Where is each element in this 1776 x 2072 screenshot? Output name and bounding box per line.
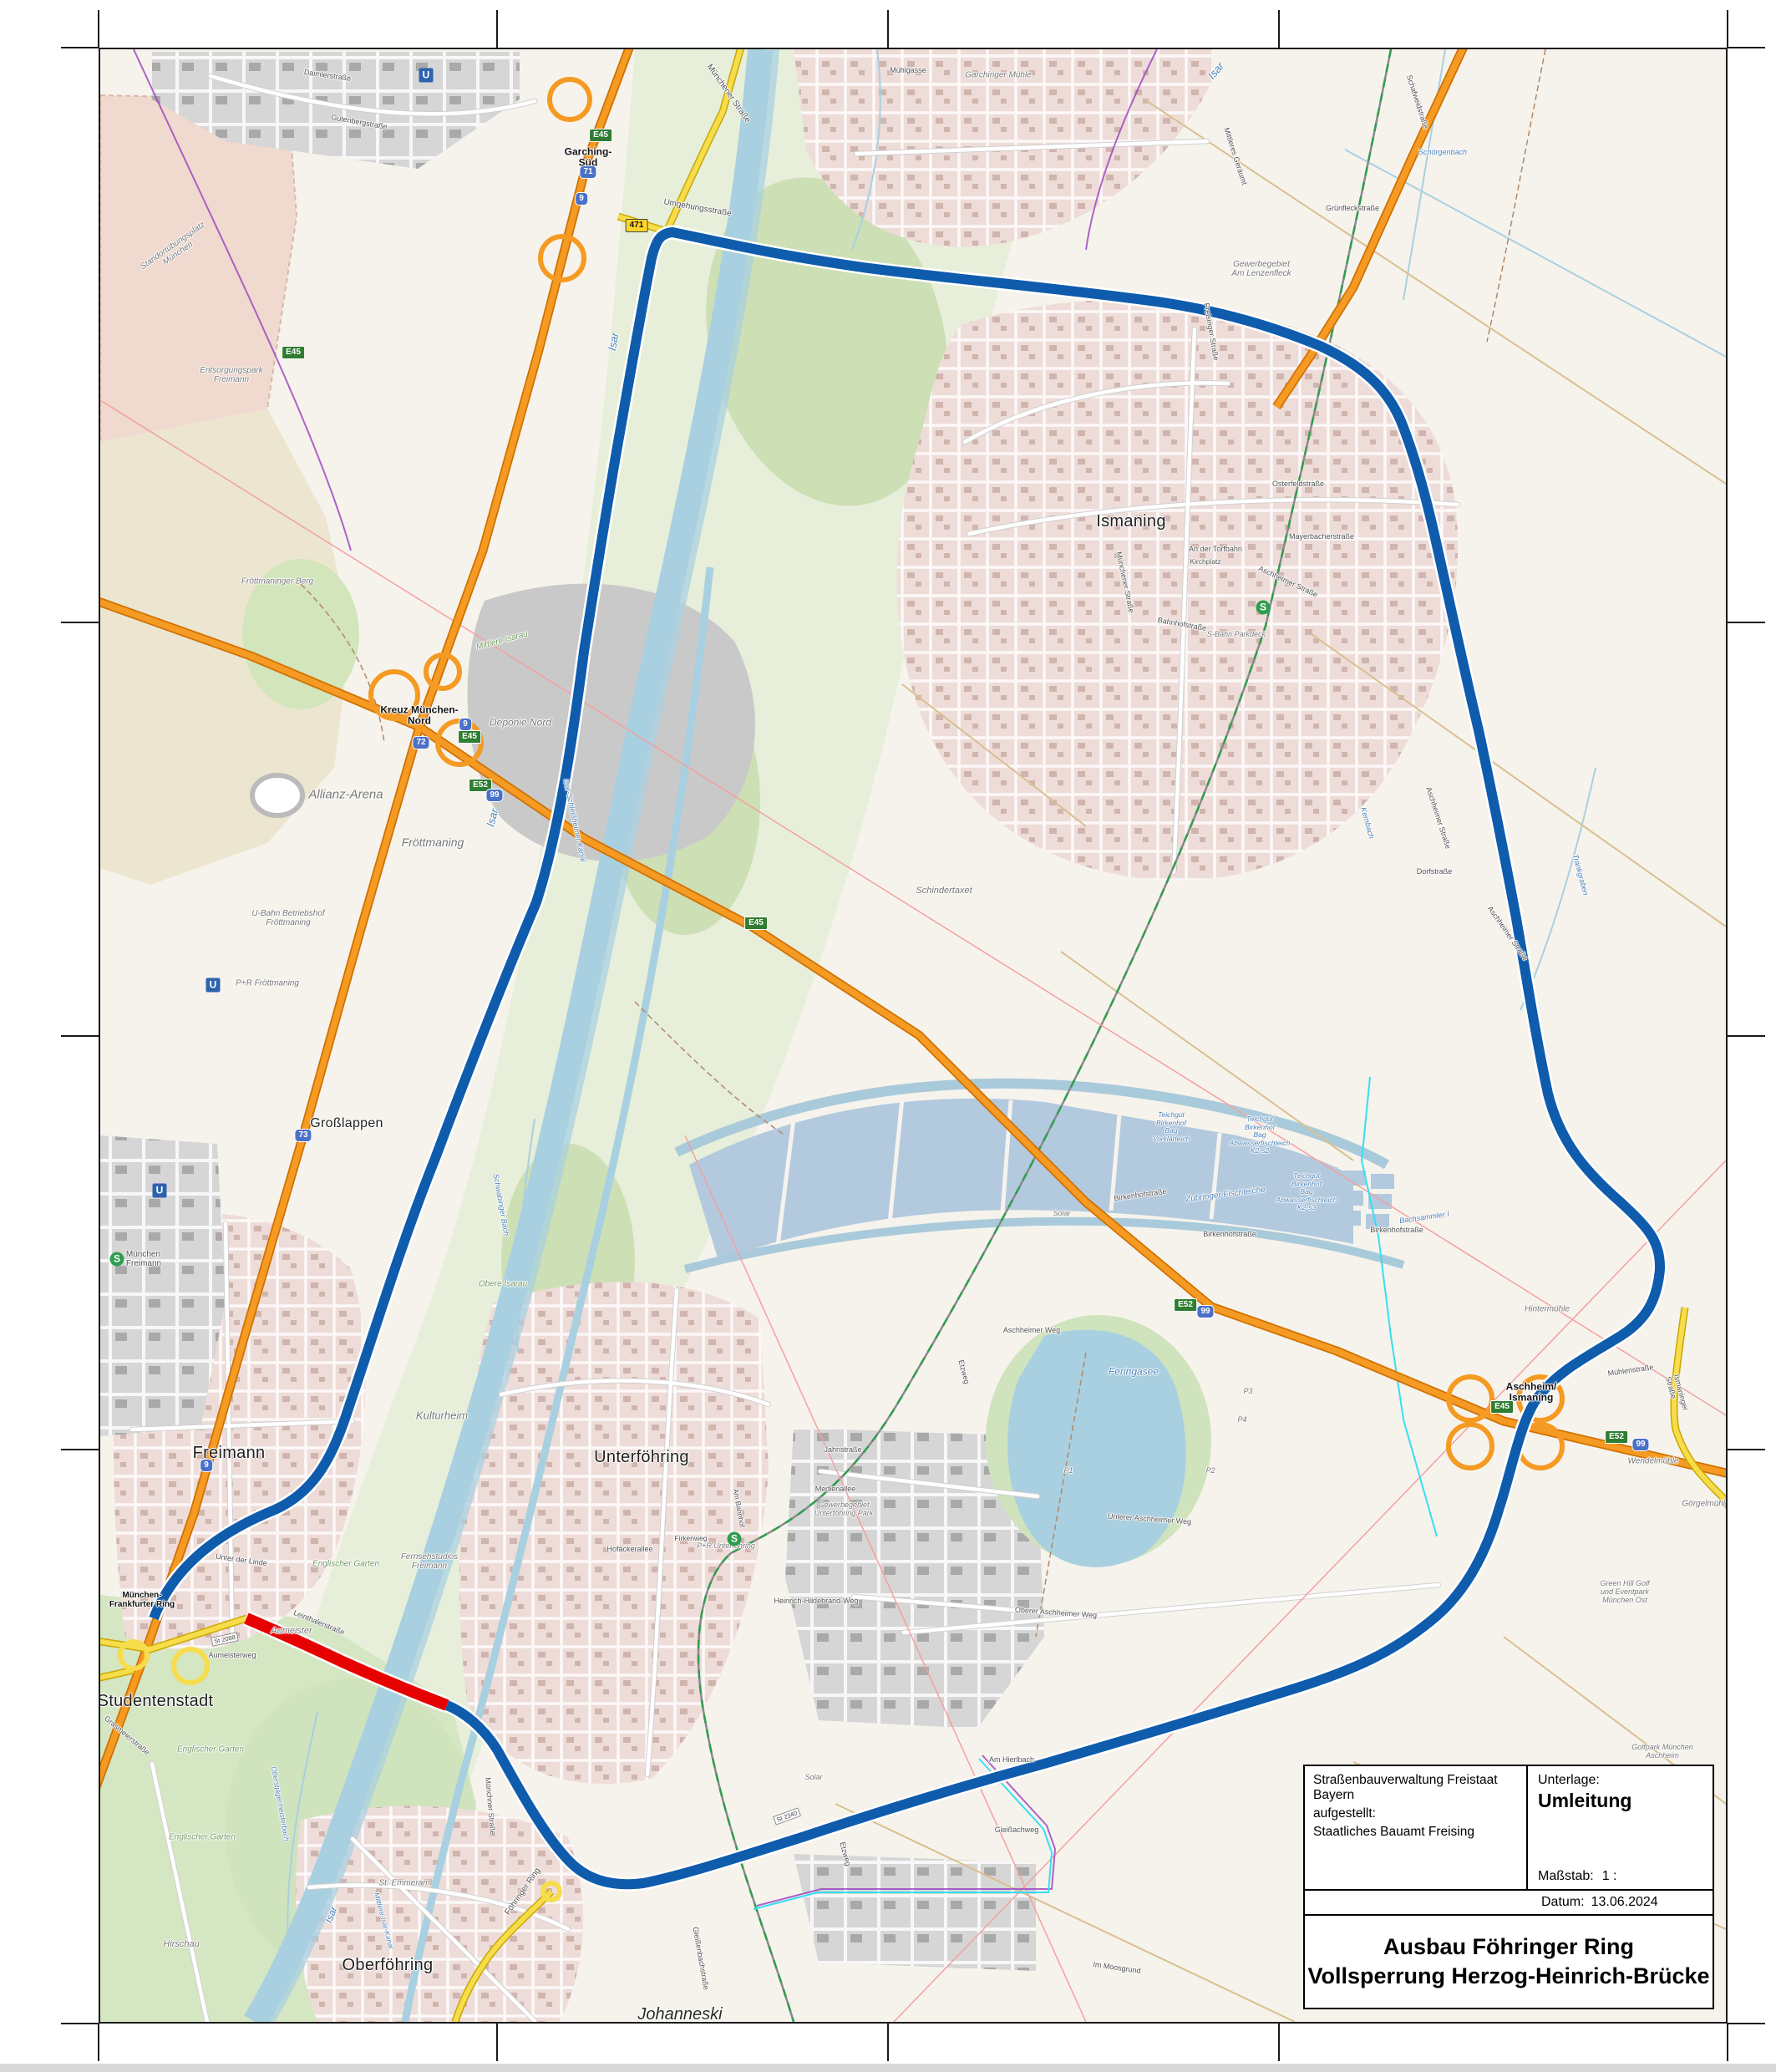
map-label: St 2340 [773,1807,801,1825]
map-label: Gutenbergstraße [331,113,388,131]
map-label: Englischer Garten [177,1744,244,1754]
road-shield: 9 [459,718,472,731]
frame-corner-mark [1728,2023,1765,2024]
map-label: Föhringer Ring [503,1866,542,1917]
map-label: P2 [1205,1466,1215,1475]
frame-tick [61,1035,99,1037]
map-label: U-Bahn Betriebshof Fröttmaning [251,909,324,927]
title-block-document-cell: Unterlage: Umleitung Maßstab:1 : [1528,1766,1713,1889]
frame-corner-mark [1727,10,1728,48]
map-label: Mittleres Geräumt [1222,126,1249,185]
map-label: Fröttmaning [402,836,464,850]
map-label: Grünfleckstraße [1326,204,1379,212]
map-label: Johanneski [637,2005,722,2024]
map-label: P3 [1243,1387,1252,1395]
map-label: Oberföhring [343,1956,434,1974]
frame-tick [61,622,99,623]
map-label: Isar [485,808,501,829]
map-label: Gewerbegebiet Am Lenzenfleck [1231,260,1291,278]
map-label: Unterer Aschheimer Weg [1108,1511,1192,1526]
map-label: Fröttmaninger Berg [241,576,313,586]
sbahn-icon: S [110,1252,124,1267]
map-label: Englischer Garten [169,1832,236,1841]
road-shield: E45 [589,129,612,142]
title-block: Straßenbauverwaltung Freistaat Bayern au… [1303,1765,1714,2009]
map-label: Mittlere Isarau [475,629,529,652]
map-label: Medienallee [815,1485,856,1493]
map-label: Großlappen [310,1116,383,1131]
map-label: Am Bahnhof [731,1488,745,1528]
frame-tick [1728,1449,1765,1450]
date-value: 13.06.2024 [1591,1895,1658,1909]
plan-title-line1: Ausbau Föhringer Ring [1383,1932,1634,1962]
map-label: Aschheimer Straße [1486,905,1530,962]
map-label: Schörgenbach [1418,148,1467,156]
map-label: Umgehungsstraße [663,197,733,218]
map-label: Etzweg [838,1841,852,1866]
map-label: Teichgut Birkenhof Bag Abwasserfischteic… [1276,1172,1337,1212]
road-shield: 9 [575,192,588,206]
road-shield: 99 [485,789,503,802]
map-label: München- Frankfurter Ring [109,1591,175,1609]
map-label: Teichgut Birkenhof Bag Vorklärteich [1153,1111,1190,1143]
map-label: Bachsammler I [1399,1210,1450,1225]
date-label: Datum: [1541,1895,1585,1909]
plan-title: Ausbau Föhringer Ring Vollsperrung Herzo… [1305,1914,1713,2008]
sbahn-icon: S [728,1532,742,1546]
map-label: Unter der Linde [216,1552,268,1568]
map-label: Allianz-Arena [308,789,383,803]
sbahn-icon: S [1256,601,1271,615]
map-label: Bahnhofstraße [1157,616,1207,632]
map-label: Kernbach [1359,806,1376,840]
map-label: Oberstjägermeisterbach [269,1766,290,1842]
frame-tick [496,2024,498,2061]
prepared-label: aufgestellt: [1313,1806,1518,1821]
document-value: Umleitung [1538,1790,1702,1812]
map-label: Solar [804,1773,822,1781]
map-label: Am Hierlbach [989,1755,1034,1764]
frame-corner-mark [61,2023,99,2024]
map-label: Oberer Aschheimer Weg [1015,1606,1098,1620]
map-label: P1 [1063,1466,1073,1475]
map-label: Golfpark München Aschheim [1631,1743,1693,1760]
map-label: Aumeisterweg [208,1651,256,1659]
frame-corner-mark [1727,2024,1728,2061]
map-label: Görgelmühle [1682,1499,1728,1508]
frame-tick [887,2024,889,2061]
map-canvas: IsmaningUnterföhringFreimannStudentensta… [99,48,1728,2024]
road-shield: E52 [1174,1298,1197,1312]
map-labels-layer: IsmaningUnterföhringFreimannStudentensta… [100,49,1726,2022]
map-label: Standortübungsplatz München [139,221,212,280]
map-label: Solar [1053,1209,1070,1217]
frame-tick [1278,10,1280,48]
road-shield: 72 [412,736,429,749]
ubahn-icon: U [206,978,221,993]
date-row: Datum:13.06.2024 [1305,1889,1713,1914]
map-label: Schafweidstraße [1405,74,1430,130]
scale-row: Maßstab:1 : [1538,1869,1625,1884]
map-label: P4 [1237,1415,1246,1424]
frame-corner-mark [98,2024,99,2061]
map-label: Entsorgungspark Freimann [200,366,263,384]
scale-label: Maßstab: [1538,1869,1594,1883]
plan-title-line2: Vollsperrung Herzog-Heinrich-Brücke [1307,1962,1709,1991]
map-label: Deponie Nord [490,717,551,728]
ubahn-icon: U [419,69,434,83]
map-label: An der Torfbahn [1189,545,1242,553]
map-label: Jahnstraße [824,1445,861,1454]
road-shield: E45 [1490,1400,1514,1414]
map-label: St 2088 [211,1632,238,1646]
map-label: Teichgut Birkenhof Bag Abwasserfischteic… [1230,1115,1291,1155]
map-label: Münchener Straße [1114,551,1135,613]
map-label: S-Bahn Parkdeck [1207,630,1266,638]
map-label: Isar-Schleißheimer Kanal [562,779,588,863]
map-sheet: IsmaningUnterföhringFreimannStudentensta… [0,0,1776,2072]
map-label: Daimlerstraße [303,68,351,83]
frame-tick [1278,2024,1280,2061]
map-label: Mittlere-Isar-Kanal [372,1892,394,1949]
map-label: Birkenhofstraße [1203,1230,1256,1238]
title-block-agency-cell: Straßenbauverwaltung Freistaat Bayern au… [1305,1766,1528,1889]
frame-tick [61,1449,99,1450]
map-label: Münchner Straße [484,1777,497,1836]
map-label: Münchener Straße [705,63,753,124]
frame-corner-mark [1728,47,1765,48]
road-shield: 99 [1631,1438,1649,1451]
map-label: Hintermühle [1525,1304,1570,1313]
map-label: München Freimann [126,1250,161,1268]
map-label: Osterfeldstraße [1272,480,1324,488]
map-label: Ismaning [1096,512,1166,531]
map-label: Kreuz München- Nord [380,705,458,728]
scale-value: 1 : [1602,1869,1617,1883]
map-label: Schwabinger Bach [492,1173,511,1237]
map-label: Green Hill Golf und Eventpark München Os… [1600,1579,1649,1604]
map-label: St. Emmeram [378,1878,429,1887]
map-label: Kirchplatz [1190,558,1220,566]
map-label: Obere Isarau [479,1279,527,1288]
map-label: Garchinger Mühle [965,70,1031,79]
road-shield: 71 [579,165,596,179]
map-label: Birkenhofstraße [1370,1226,1423,1234]
map-label: Aschheimer Straße [1424,786,1452,850]
map-label: Schindertaxet [916,886,972,896]
map-label: Aumeister [271,1626,312,1636]
map-label: Freisinger Straße [1202,302,1220,361]
frame-tick [1728,1035,1765,1037]
frame-tick [887,10,889,48]
map-label: Im Moosgrund [1093,1960,1141,1975]
map-label: Gleißachweg [995,1826,1039,1834]
map-label: Kulturheim [416,1410,468,1423]
frame-corner-mark [98,10,99,48]
map-label: Isar [606,332,622,352]
map-label: Isar [323,1905,339,1924]
map-label: Hirschau [163,1939,199,1949]
map-label: Ismaninger Straße [1664,1374,1692,1424]
map-label: Feringasee [1109,1366,1159,1377]
map-label: Wendelmühle [1628,1456,1679,1465]
ubahn-icon: U [153,1184,167,1198]
map-label: Studentenstadt [99,1692,213,1710]
sheet-edge [0,2064,1776,2072]
map-label: Birkenhofstraße [1114,1187,1167,1203]
prepared-by: Staatliches Bauamt Freising [1313,1825,1518,1840]
document-label: Unterlage: [1538,1773,1702,1788]
map-label: Unterföhring [594,1448,689,1466]
map-label: Isar [1205,60,1226,82]
map-label: Mayerbacherstraße [1289,532,1354,541]
frame-corner-mark [61,47,99,48]
frame-tick [496,10,498,48]
road-shield: 471 [626,219,648,232]
road-shield: E45 [282,346,305,359]
map-label: Heinrich-Hildebrand-Weg [774,1597,859,1605]
map-label: P+R Fröttmaning [236,978,299,988]
map-label: Englischer Garten [312,1559,379,1568]
map-label: Mühlenstraße [1607,1363,1654,1378]
road-shield: 99 [1196,1305,1214,1318]
map-label: Etzweg [957,1358,971,1384]
map-label: Aschheimer Straße [1257,564,1319,599]
map-label: Firkenweg [674,1535,707,1543]
map-label: Dorfstraße [1417,867,1453,876]
map-label: Gewerbegebiet Unterföhring Park [814,1501,874,1517]
map-label: Gleißenbachstraße [691,1926,710,1990]
road-shield: 73 [294,1129,312,1142]
map-label: Zubringer Fischteiche [1185,1186,1266,1205]
map-label: Fernsehstudios Freimann [401,1552,458,1571]
map-label: Aschheimer Weg [1003,1326,1060,1334]
road-shield: E45 [744,917,768,930]
road-shield: 9 [200,1459,213,1472]
map-label: Mühlgasse [890,66,926,74]
map-label: Tränkgraben [1571,853,1591,896]
road-shield: E52 [1605,1430,1628,1444]
road-shield: E45 [458,730,481,744]
map-label: Hofäckerallee [606,1545,652,1553]
map-label: Grasmeierstraße [103,1714,151,1756]
frame-tick [1728,622,1765,623]
agency-name: Straßenbauverwaltung Freistaat Bayern [1313,1773,1518,1803]
